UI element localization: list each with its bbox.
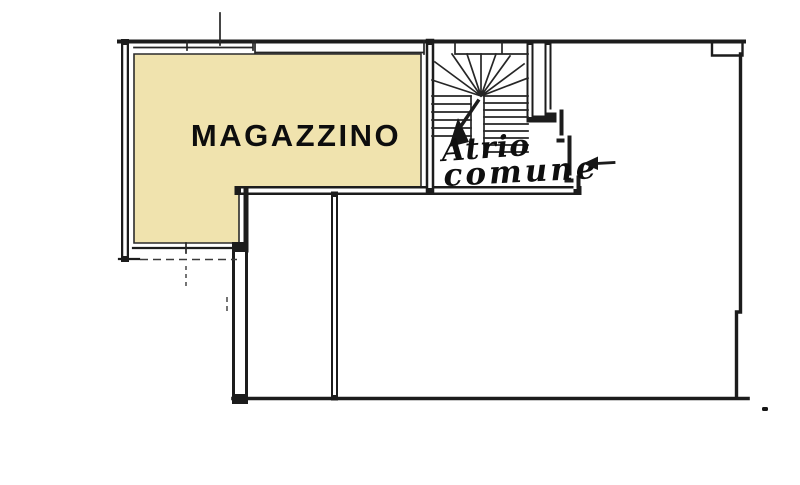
wall-below-storage [133,243,239,313]
right-wall [737,54,741,398]
floor-plan-drawing: Atrio comune MAGAZZINO [0,0,800,485]
magazzino-label: MAGAZZINO [191,118,401,153]
atrio-room: Atrio comune [437,128,614,194]
stair-landing [455,43,528,54]
ink-speck [762,407,768,411]
floor-plan-image: Atrio comune MAGAZZINO [0,0,800,485]
stair-winders [432,54,528,96]
